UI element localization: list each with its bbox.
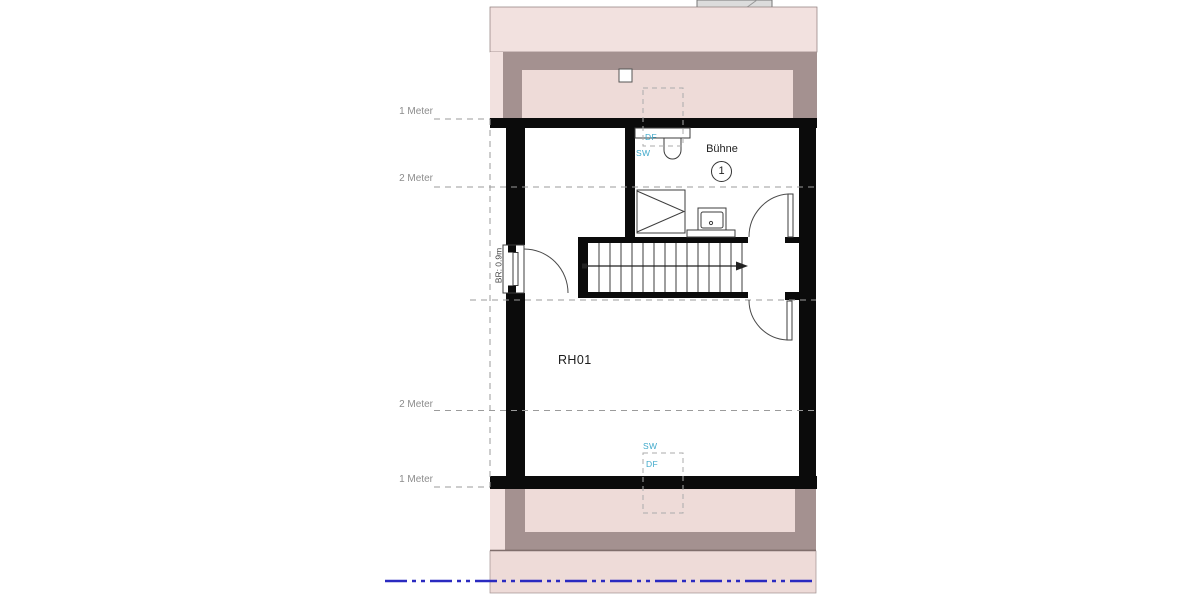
floor-plan-drawing — [0, 0, 1200, 600]
wall-bottom — [490, 476, 817, 489]
skylight-top-df-label: DF — [645, 132, 657, 142]
staircase-treads — [599, 243, 742, 292]
roof-window-swing — [664, 138, 681, 159]
door-landing-bottom-leaf — [787, 301, 792, 340]
door-landing-top-leaf — [788, 194, 793, 237]
exterior-walls — [490, 118, 817, 489]
scale-label-bottom-1m: 1 Meter — [383, 474, 433, 485]
skylight-bottom-df-label: DF — [646, 459, 658, 469]
scale-label-bottom-2m: 2 Meter — [383, 399, 433, 410]
staircase — [582, 243, 748, 292]
roof-vent-hatch — [619, 69, 632, 82]
room-label-rh01: RH01 — [558, 353, 592, 367]
wall-partition — [625, 128, 635, 237]
door-landing-top-arc — [749, 194, 788, 237]
stair-wall-top — [578, 237, 748, 243]
skylight-bottom-sw-label: SW — [643, 441, 657, 451]
floor-plan-canvas: 1 Meter 2 Meter 2 Meter 1 Meter Bühne 1 … — [0, 0, 1200, 600]
washbasin-counter — [687, 230, 735, 237]
room-number-badge: 1 — [711, 161, 732, 182]
skylight-top-sw-label: SW — [636, 148, 650, 158]
washbasin — [687, 208, 735, 237]
door-left-swing-arc — [524, 249, 568, 293]
room-label-buehne: Bühne — [698, 143, 746, 155]
door-landing-top — [749, 194, 793, 237]
door-landing-bottom — [749, 300, 792, 340]
door-jamb-stub-top — [785, 237, 799, 243]
shower — [637, 190, 685, 233]
stair-wall-bottom — [578, 292, 748, 298]
door-width-label: BR: 0.9m — [494, 240, 505, 292]
door-landing-bottom-arc — [749, 300, 787, 340]
wall-right — [799, 128, 816, 476]
scale-label-top-1m: 1 Meter — [383, 106, 433, 117]
door-jamb-stub-bottom — [785, 292, 799, 300]
interior-walls — [578, 128, 799, 300]
roof-overhang-top — [490, 7, 817, 118]
door-left — [503, 245, 568, 293]
scale-label-top-2m: 2 Meter — [383, 173, 433, 184]
wall-left-lower — [506, 293, 525, 476]
roof-overhang-bottom — [490, 489, 816, 593]
wall-top — [490, 118, 817, 128]
